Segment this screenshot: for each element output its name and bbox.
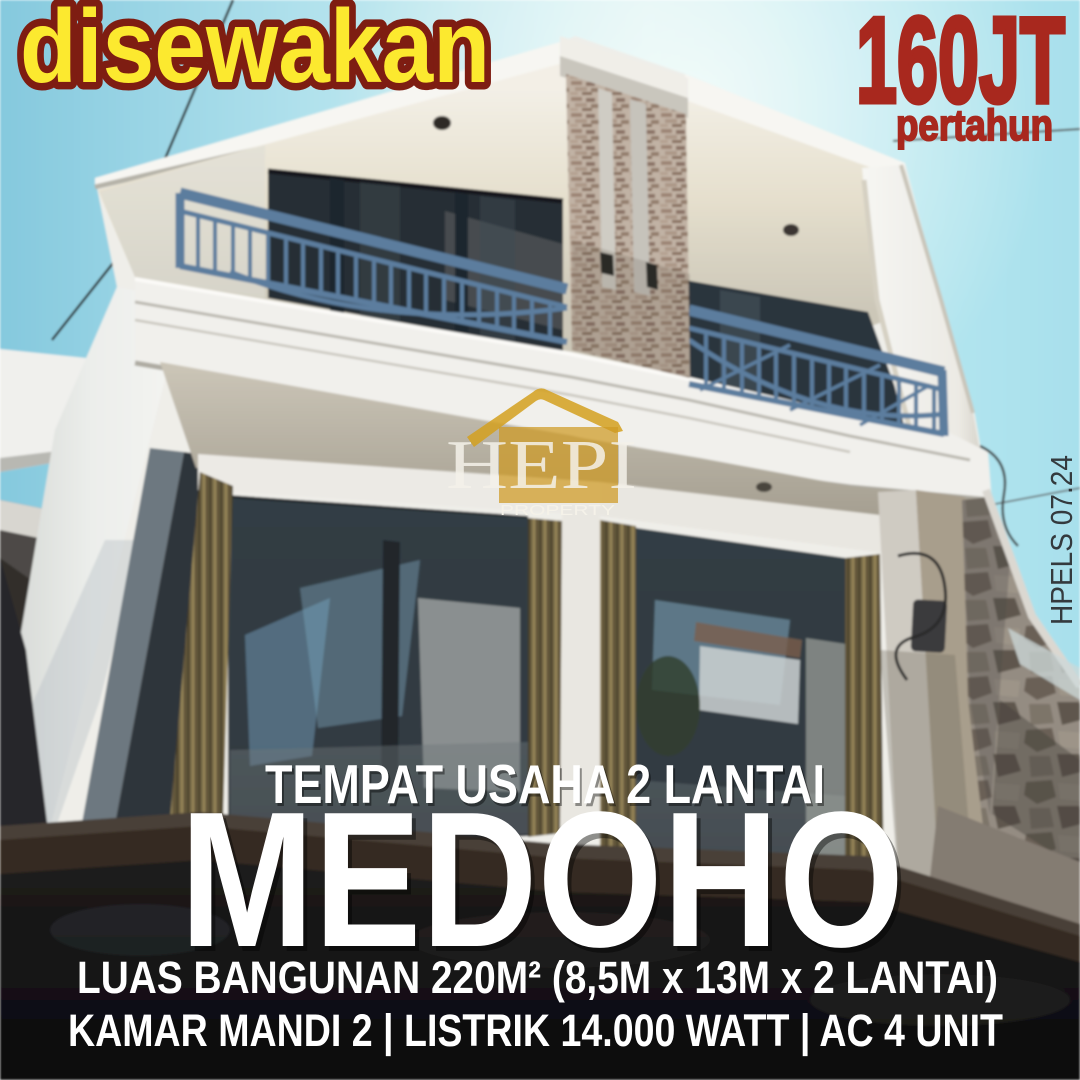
svg-text:HEPI: HEPI: [446, 427, 637, 504]
svg-text:HPELS 07.24: HPELS 07.24: [1044, 455, 1079, 625]
svg-text:PROPERTY: PROPERTY: [500, 502, 615, 519]
svg-text:disewakan: disewakan: [20, 0, 490, 105]
svg-text:pertahun: pertahun: [896, 101, 1053, 150]
svg-text:KAMAR MANDI 2 | LISTRIK 14.000: KAMAR MANDI 2 | LISTRIK 14.000 WATT | AC…: [68, 1005, 1003, 1057]
svg-text:LUAS BANGUNAN 220M² (8,5M x 13: LUAS BANGUNAN 220M² (8,5M x 13M x 2 LANT…: [77, 952, 998, 1003]
